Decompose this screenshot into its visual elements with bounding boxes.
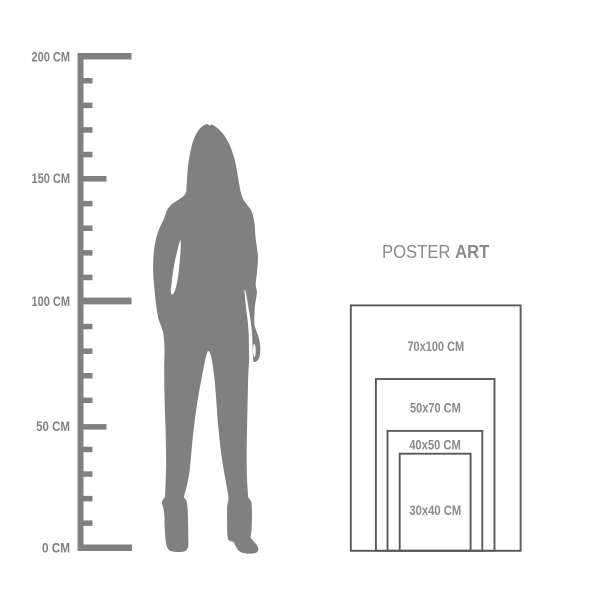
svg-text:150 CM: 150 CM — [32, 170, 71, 186]
svg-text:70x100 CM: 70x100 CM — [407, 338, 464, 354]
svg-text:200 CM: 200 CM — [32, 49, 71, 65]
svg-text:40x50 CM: 40x50 CM — [409, 436, 461, 452]
svg-text:100 CM: 100 CM — [32, 293, 71, 309]
svg-text:30x40 CM: 30x40 CM — [409, 502, 461, 518]
svg-text:50 CM: 50 CM — [36, 418, 70, 434]
svg-text:50x70 CM: 50x70 CM — [410, 399, 461, 415]
svg-text:POSTER ART: POSTER ART — [382, 242, 489, 262]
svg-text:0 CM: 0 CM — [42, 540, 70, 556]
